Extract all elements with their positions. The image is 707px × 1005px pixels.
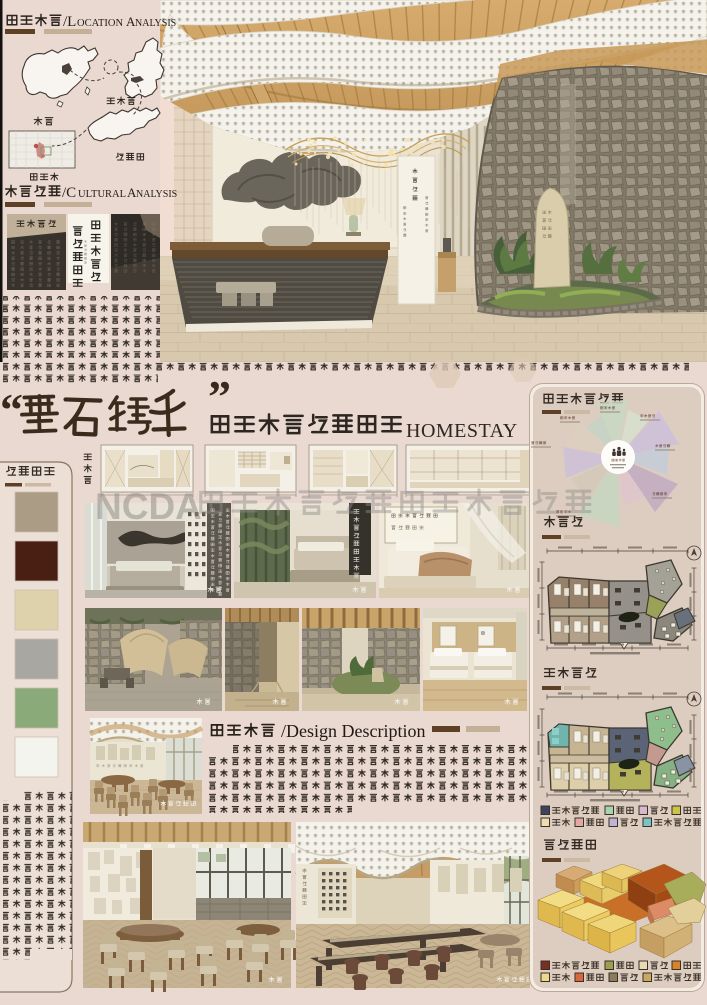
svg-text:/C: /C (62, 185, 76, 201)
svg-text:NCDA: NCDA (95, 486, 202, 527)
svg-text:NALYSIS: NALYSIS (136, 189, 177, 200)
svg-text:”: ” (208, 371, 231, 422)
svg-text:ULTURAL: ULTURAL (78, 189, 126, 200)
svg-text:“: “ (0, 384, 23, 435)
svg-text:NALYSIS: NALYSIS (135, 18, 176, 29)
svg-text:/Design Description: /Design Description (281, 721, 425, 741)
svg-text:HOMESTAY: HOMESTAY (406, 420, 518, 442)
svg-text:OCATION: OCATION (77, 18, 123, 29)
svg-text:/L: /L (63, 14, 76, 30)
